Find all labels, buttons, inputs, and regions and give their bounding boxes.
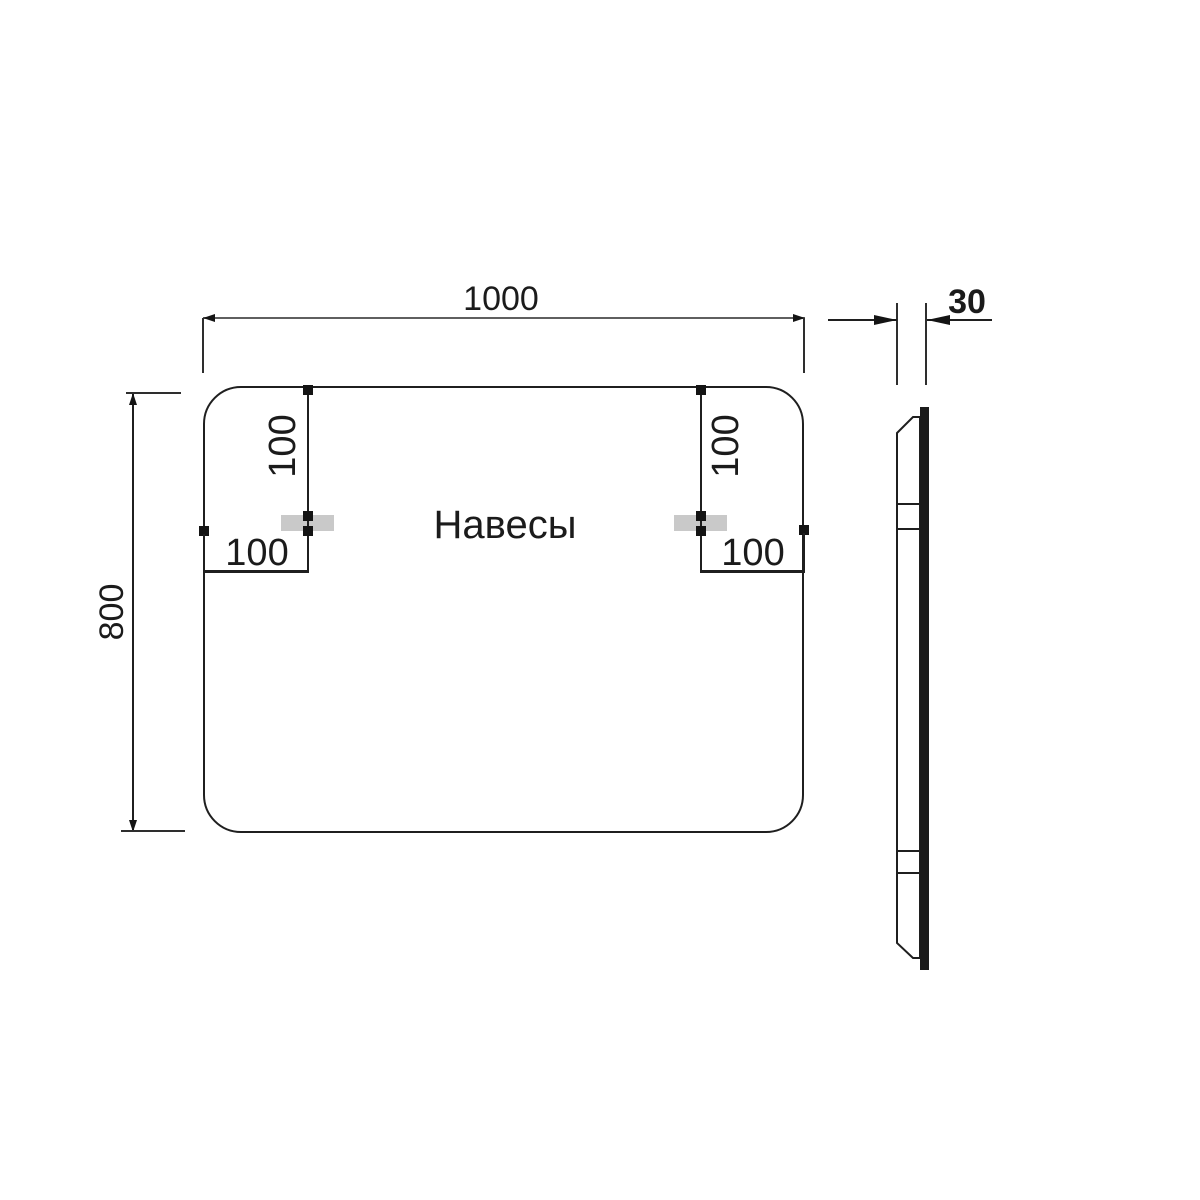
- dim-width-extension-left: [202, 318, 204, 373]
- dim-height-extension-bottom: [121, 830, 185, 832]
- right-bracket-top-edge-marker: [696, 385, 706, 395]
- right-bracket-side-offset-label: 100: [698, 536, 808, 570]
- left-bracket-top-offset-label: 100: [266, 376, 300, 516]
- technical-drawing-canvas: 1000 800 Навесы 100 100 100 100: [0, 0, 1200, 1200]
- left-bracket-side-offset-label: 100: [202, 536, 312, 570]
- right-bracket-top-offset-label: 100: [709, 376, 743, 516]
- right-bracket-upper-marker: [696, 511, 706, 521]
- hangers-label: Навесы: [385, 503, 625, 547]
- dim-height-arrow-top: [129, 393, 137, 405]
- dim-width-extension-right: [803, 318, 805, 373]
- dim-depth-arrow-left: [874, 315, 897, 325]
- dim-width-arrow-left: [203, 314, 215, 322]
- left-bracket-upper-marker: [303, 511, 313, 521]
- side-backing-outline: [897, 417, 920, 958]
- dim-depth-label: 30: [927, 285, 1007, 319]
- dim-height-line: [132, 393, 134, 832]
- left-bracket-top-edge-marker: [303, 385, 313, 395]
- dim-height-label: 800: [95, 542, 129, 682]
- left-bracket-lower-marker: [303, 526, 313, 536]
- dim-height-extension-top: [126, 392, 181, 394]
- side-glass-bar: [920, 407, 929, 970]
- dim-width-label: 1000: [401, 282, 601, 316]
- right-bracket-lower-marker: [696, 526, 706, 536]
- mirror-side-view: [880, 395, 960, 995]
